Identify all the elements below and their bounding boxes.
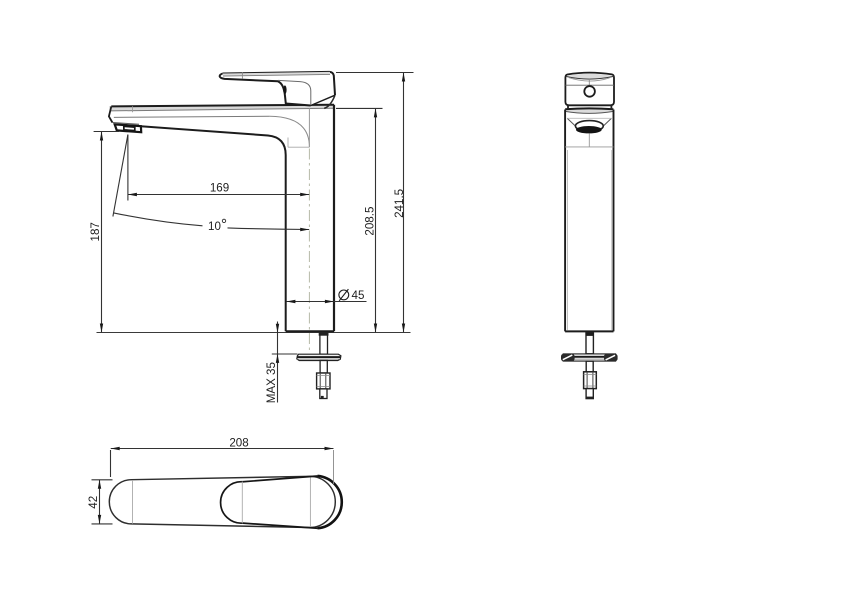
svg-text:187: 187: [89, 222, 102, 241]
svg-text:45: 45: [352, 289, 365, 302]
svg-text:42: 42: [87, 496, 100, 509]
svg-text:MAX 35: MAX 35: [265, 362, 278, 403]
svg-text:208.5: 208.5: [364, 207, 377, 236]
svg-text:241.5: 241.5: [393, 189, 406, 218]
svg-text:10: 10: [208, 220, 221, 233]
svg-text:208: 208: [229, 436, 248, 449]
svg-text:169: 169: [210, 181, 229, 194]
